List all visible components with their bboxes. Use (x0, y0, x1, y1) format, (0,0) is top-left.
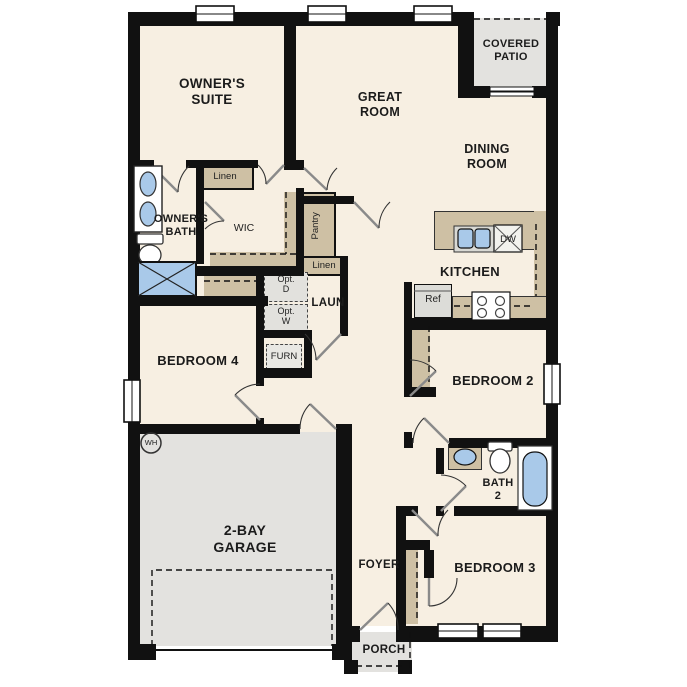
label-furnace: FURN (266, 351, 302, 363)
window-bedroom4 (124, 380, 140, 422)
label-owners-bath: OWNER'S BATH (145, 213, 217, 240)
label-laundry: LAUN (306, 296, 350, 310)
door-owners-bath-arc (178, 166, 189, 192)
bath2-sink (454, 449, 476, 465)
door-laundry-leaf (316, 334, 341, 360)
label-linen-upper: Linen (198, 171, 252, 183)
label-pantry: Pantry (310, 196, 322, 256)
label-bedroom2: BEDROOM 2 (434, 373, 552, 389)
bath2-tub (518, 446, 552, 510)
kitchen-sink (454, 226, 494, 252)
vanity-sink-1 (140, 172, 156, 196)
door-closet3-arc (429, 578, 457, 606)
label-water-heater: WH (140, 438, 162, 447)
door-bedroom3-arc (438, 510, 448, 536)
door-laundry-arc (305, 334, 316, 360)
door-kitchen-hall-arc (379, 202, 390, 228)
door-garage-leaf (310, 404, 336, 429)
label-garage: 2-BAY GARAGE (197, 522, 293, 556)
label-dishwasher: DW (494, 234, 522, 246)
door-hall-arc (413, 418, 424, 443)
door-hall-leaf (424, 418, 449, 443)
door-front-leaf (360, 603, 388, 630)
label-wic: WIC (222, 222, 266, 235)
door-bedroom3-leaf (412, 510, 438, 536)
label-bedroom3: BEDROOM 3 (434, 560, 556, 576)
door-greatroom-hall-leaf (304, 168, 327, 190)
door-bedroom4-arc (235, 384, 260, 395)
door-front-arc (388, 603, 398, 630)
label-covered-patio: COVERED PATIO (466, 38, 556, 65)
door-bath2-arc (441, 475, 466, 486)
label-owners-suite: OWNER'S SUITE (156, 76, 268, 109)
door-owners-suite-leaf (266, 165, 284, 184)
label-opt-washer: Opt. W (264, 306, 308, 327)
door-owners-suite-arc (258, 165, 266, 184)
label-bedroom4: BEDROOM 4 (139, 353, 257, 369)
label-great-room: GREAT ROOM (340, 90, 420, 121)
label-porch: PORCH (356, 643, 412, 657)
label-foyer: FOYER (352, 558, 406, 572)
bath2-toilet (488, 442, 512, 473)
label-dining-room: DINING ROOM (444, 142, 530, 173)
label-refrigerator: Ref (418, 294, 448, 306)
door-bath2-leaf (441, 486, 466, 511)
label-bath2: BATH 2 (474, 477, 522, 504)
window-top-1 (196, 6, 234, 22)
door-bedroom2-arc (410, 360, 436, 371)
floor-plan: OWNER'S SUITE GREAT ROOM COVERED PATIO D… (0, 0, 687, 687)
window-top-2 (308, 6, 346, 22)
stove (472, 292, 510, 320)
label-opt-dryer: Opt. D (264, 274, 308, 295)
door-garage-arc (300, 404, 310, 429)
patio-slider-door (490, 87, 534, 96)
door-kitchen-hall-leaf (354, 202, 379, 228)
window-bedroom3-2 (483, 624, 521, 638)
door-bedroom2-leaf (410, 371, 436, 396)
window-bedroom3-1 (438, 624, 478, 638)
door-greatroom-hall-arc (327, 168, 337, 190)
label-kitchen: KITCHEN (428, 264, 512, 280)
garage-door-setback (152, 570, 332, 646)
window-top-3 (414, 6, 452, 22)
door-bedroom4-leaf (235, 395, 260, 420)
owners-bath-shower (138, 262, 196, 296)
label-linen-lower: Linen (302, 260, 346, 272)
